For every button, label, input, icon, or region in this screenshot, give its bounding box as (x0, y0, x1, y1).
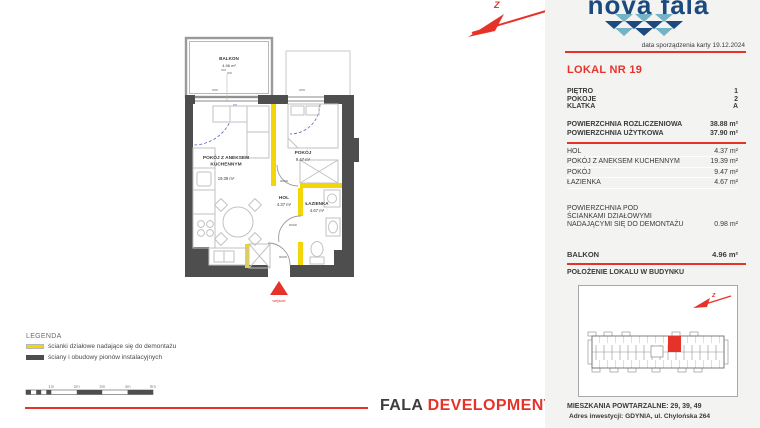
living-label-2: KUCHENNYM (210, 162, 241, 168)
minimap-compass-icon: Z (693, 293, 731, 308)
dark-wall-swatch (26, 355, 44, 360)
demontaz-line: POWIERZCHNIA POD (567, 205, 738, 213)
attr-row: PIĘTRO 1 (567, 88, 738, 96)
legend-item-label: ścianki działowe nadające się do demonta… (48, 343, 176, 350)
bedroom-area: 9.47 m² (296, 157, 311, 162)
footer-brand: FALA DEVELOPMENT 2 (380, 397, 568, 415)
neighbour-balcony-outline (286, 51, 350, 95)
attr-label: PIĘTRO (567, 88, 593, 96)
balcony-area: 4.96 m² (222, 63, 236, 68)
bedroom-furniture (288, 104, 338, 183)
room-area: 9.47 m² (714, 168, 738, 177)
demountable-area-note: POWIERZCHNIA POD ŚCIANKAMI DZIAŁOWYMI NA… (567, 205, 738, 229)
room-label: ŁAZIENKA (567, 178, 601, 187)
living-label-1: POKÓJ Z ANEKSEM (203, 153, 249, 161)
balcony: BALKON 4.96 m² (186, 38, 272, 101)
apartment-card-page: Z BALKON 4.96 m² (0, 0, 760, 428)
building-minimap: Z (579, 286, 737, 396)
building-location-map: Z (578, 285, 738, 397)
area-row: POWIERZCHNIA ROZLICZENIOWA 38.88 m² (567, 120, 738, 129)
entrance-marker: wejście (270, 281, 288, 303)
divider (567, 263, 746, 265)
room-area: 4.37 m² (714, 147, 738, 156)
scale-tick: 2m (74, 384, 80, 389)
attr-value: A (733, 103, 738, 111)
demontaz-line: ŚCIANKAMI DZIAŁOWYMI (567, 213, 738, 221)
room-list: HOL 4.37 m² POKÓJ Z ANEKSEM KUCHENNYM 19… (567, 147, 738, 189)
scale-tick: 4m (125, 384, 131, 389)
area-label: POWIERZCHNIA ROZLICZENIOWA (567, 120, 682, 129)
room-row: ŁAZIENKA 4.67 m² (567, 178, 738, 188)
repeat-units-note: MIESZKANIA POWTARZALNE: 29, 39, 49 (567, 403, 702, 410)
door-size-label: 90/200 (279, 255, 287, 259)
room-label: HOL (567, 147, 581, 156)
bathroom-area: 4.67 m² (310, 208, 325, 213)
legend-item-demountable: ścianki działowe nadające się do demonta… (26, 343, 176, 350)
scale-tick-labels: 1m 2m 3m 4m 5m (48, 384, 156, 389)
area-value: 37.90 m² (710, 129, 738, 138)
area-value: 38.88 m² (710, 120, 738, 129)
attr-label: KLATKA (567, 103, 595, 111)
scale-bar: 1m 2m 3m 4m 5m (26, 384, 156, 395)
bedroom-label: POKÓJ (295, 148, 312, 156)
balcony-row-label: BALKON (567, 251, 599, 259)
room-row: HOL 4.37 m² (567, 147, 738, 157)
legend-item-structural: ściany i obudowy pionów instalacyjnych (26, 354, 176, 361)
entrance-label: wejście (272, 298, 286, 303)
logo-waves-icon (595, 13, 705, 39)
legend-title: LEGENDA (26, 333, 176, 340)
door-size-label: 90/200 (289, 223, 297, 227)
demontaz-value: 0.98 m² (714, 221, 738, 229)
door-size-label: 90/200 (280, 179, 288, 183)
room-row: POKÓJ Z ANEKSEM KUCHENNYM 19.39 m² (567, 157, 738, 167)
room-area: 19.39 m² (710, 157, 738, 166)
attr-label: POKOJE (567, 96, 596, 104)
attr-value: 1 (734, 88, 738, 96)
toilet (310, 257, 324, 264)
room-label: POKÓJ (567, 168, 591, 177)
bathroom-label: ŁAZIENKA (305, 201, 329, 206)
scale-tick: 5m (150, 384, 156, 389)
room-area: 4.67 m² (714, 178, 738, 187)
door-size-labels: 90/200 90/200 90/200 (279, 179, 297, 259)
divider (567, 142, 746, 144)
investment-address: Adres inwestycji: GDYNIA, ul. Chylońska … (569, 413, 710, 420)
balcony-row-value: 4.96 m² (712, 251, 738, 259)
footer-divider (25, 407, 368, 409)
demontaz-line: NADAJĄCYMI SIĘ DO DEMONTAŻU (567, 221, 684, 229)
compass-icon: Z (468, 0, 545, 37)
minimap-compass-label: Z (711, 293, 716, 299)
scale-tick: 1m (48, 384, 54, 389)
attr-value: 2 (734, 96, 738, 104)
living-area: 19.39 m² (218, 176, 235, 181)
building-outline (588, 332, 728, 372)
dining-table (223, 207, 253, 237)
card-date: data sporządzenia karty 19.12.2024 (642, 42, 745, 49)
highlighted-unit-marker (668, 336, 681, 352)
divider (565, 51, 746, 53)
area-label: POWIERZCHNIA UŻYTKOWA (567, 129, 664, 138)
unit-title: LOKAL NR 19 (567, 64, 642, 76)
main-areas: POWIERZCHNIA ROZLICZENIOWA 38.88 m² POWI… (567, 120, 738, 138)
room-label: POKÓJ Z ANEKSEM KUCHENNYM (567, 157, 680, 166)
room-row: POKÓJ 9.47 m² (567, 168, 738, 178)
footer-brand-dark: FALA (380, 397, 423, 414)
unit-data-panel: nova fala data sporządzenia karty 19.12.… (545, 0, 760, 428)
area-row: POWIERZCHNIA UŻYTKOWA 37.90 m² (567, 129, 738, 138)
hall-area: 4.37 m² (277, 202, 292, 207)
legend-item-label: ściany i obudowy pionów instalacyjnych (48, 354, 162, 361)
attr-row: POKOJE 2 (567, 96, 738, 104)
bed (288, 104, 338, 148)
location-title: POŁOŻENIE LOKALU W BUDYNKU (567, 269, 684, 276)
legend: LEGENDA ścianki działowe nadające się do… (26, 333, 176, 365)
yellow-wall-swatch (26, 344, 44, 349)
unit-attributes: PIĘTRO 1 POKOJE 2 KLATKA A (567, 88, 738, 111)
balcony-label: BALKON (219, 56, 239, 61)
balcony-area-row: BALKON 4.96 m² (567, 251, 738, 259)
scale-tick: 3m (99, 384, 105, 389)
compass-label: Z (493, 0, 500, 10)
hall-label: HOL (279, 195, 289, 201)
attr-row: KLATKA A (567, 103, 738, 111)
